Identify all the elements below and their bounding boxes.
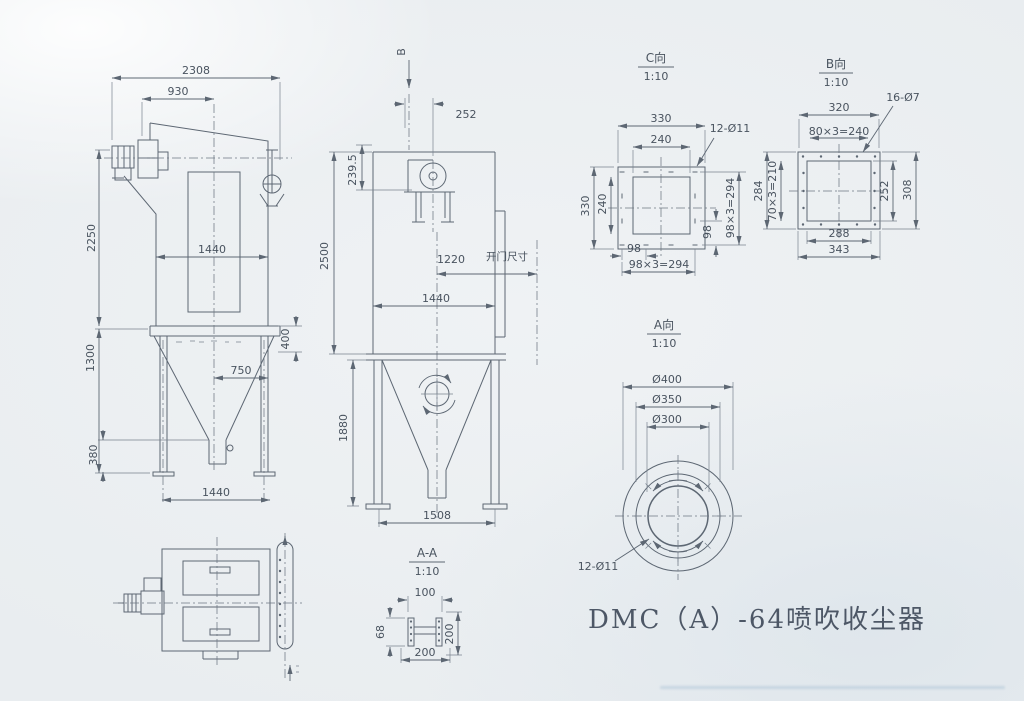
dim-a-outer-dia: Ø400 xyxy=(652,373,682,386)
door-size-note: 开门尺寸 xyxy=(486,250,528,263)
dim-side-door-offset: 1220 xyxy=(437,253,465,266)
dim-side-base-width: 1508 xyxy=(423,509,451,522)
front-view: 2308 930 2250 1440 1300 380 400 750 1440 xyxy=(84,64,302,503)
dim-front-hopper-offset: 750 xyxy=(231,364,252,377)
dim-aa-beam-height: 68 xyxy=(374,625,387,639)
holes-b-callout: 16-Ø7 xyxy=(886,91,920,104)
dim-b-opening-width: 288 xyxy=(829,227,850,240)
dim-side-inlet-drop: 239.5 xyxy=(346,154,359,186)
section-aa-scale: 1:10 xyxy=(415,565,440,578)
dim-c-pitch-total-bottom: 98×3=294 xyxy=(629,258,689,271)
section-aa-title: A-A xyxy=(417,546,438,560)
dim-c-opening-height: 240 xyxy=(596,194,609,215)
view-b: B向 1:10 320 xyxy=(752,56,920,260)
view-c-title: C向 xyxy=(646,50,666,65)
dim-side-leg-height: 1880 xyxy=(337,414,350,442)
dim-c-flange-height: 330 xyxy=(579,196,592,217)
dim-b-pitch-width: 80×3=240 xyxy=(809,125,869,138)
dim-aa-flange-width: 100 xyxy=(415,586,436,599)
dim-front-discharge-height: 380 xyxy=(87,445,100,466)
section-aa: A-A 1:10 100 68 200 200 xyxy=(374,546,462,663)
dim-b-flange-height: 308 xyxy=(901,180,914,201)
dim-side-body-width: 1440 xyxy=(422,292,450,305)
view-b-title: B向 xyxy=(826,56,846,71)
section-arrow-label: B xyxy=(395,48,408,56)
dim-aa-side-span: 200 xyxy=(443,624,456,645)
dim-b-bolt-span-width: 320 xyxy=(829,101,850,114)
dim-c-pitch-right: 98 xyxy=(701,225,714,239)
dim-c-pitch-total-right: 98×3=294 xyxy=(724,178,737,238)
dim-side-inlet-width: 252 xyxy=(456,108,477,121)
dim-b-flange-height-left: 284 xyxy=(752,181,765,202)
dim-front-inlet-drop: 400 xyxy=(279,329,292,350)
holes-c-callout: 12-Ø11 xyxy=(710,122,751,135)
scanned-drawing-page: 2308 930 2250 1440 1300 380 400 750 1440… xyxy=(0,0,1024,701)
dim-a-inner-dia: Ø300 xyxy=(652,413,682,426)
view-a-scale: 1:10 xyxy=(652,337,677,350)
side-view: B 252 239.5 25 xyxy=(318,48,537,527)
dim-b-pitch-height: 70×3=210 xyxy=(766,161,779,221)
dim-a-bolt-circle-dia: Ø350 xyxy=(652,393,682,406)
dim-front-overall-width: 2308 xyxy=(182,64,210,77)
dim-side-body-height: 2500 xyxy=(318,242,331,270)
holes-a-callout: 12-Ø11 xyxy=(578,560,619,573)
dim-c-opening-width: 240 xyxy=(651,133,672,146)
dim-front-leg-height: 1300 xyxy=(84,344,97,372)
dim-front-body-height: 2250 xyxy=(85,224,98,252)
view-a: A向 1:10 Ø400 Ø350 Ø300 12-Ø11 xyxy=(578,317,742,580)
view-c-scale: 1:10 xyxy=(644,70,669,83)
plan-view xyxy=(113,533,302,681)
dim-b-flange-width: 343 xyxy=(829,243,850,256)
engineering-drawing: 2308 930 2250 1440 1300 380 400 750 1440… xyxy=(0,0,1024,701)
view-c: C向 1:10 330 240 12-Ø11 xyxy=(579,50,750,276)
dim-c-flange-width: 330 xyxy=(651,112,672,125)
dim-front-base-width: 1440 xyxy=(202,486,230,499)
dim-aa-base-span: 200 xyxy=(415,646,436,659)
view-a-title: A向 xyxy=(654,317,674,332)
view-b-scale: 1:10 xyxy=(824,76,849,89)
drawing-caption: DMC（A）-64喷吹收尘器 xyxy=(588,605,926,635)
dim-b-opening-height: 252 xyxy=(878,181,891,202)
dim-c-pitch-bottom: 98 xyxy=(627,242,641,255)
dim-front-body-width: 1440 xyxy=(198,243,226,256)
dim-front-drive-span: 930 xyxy=(168,85,189,98)
